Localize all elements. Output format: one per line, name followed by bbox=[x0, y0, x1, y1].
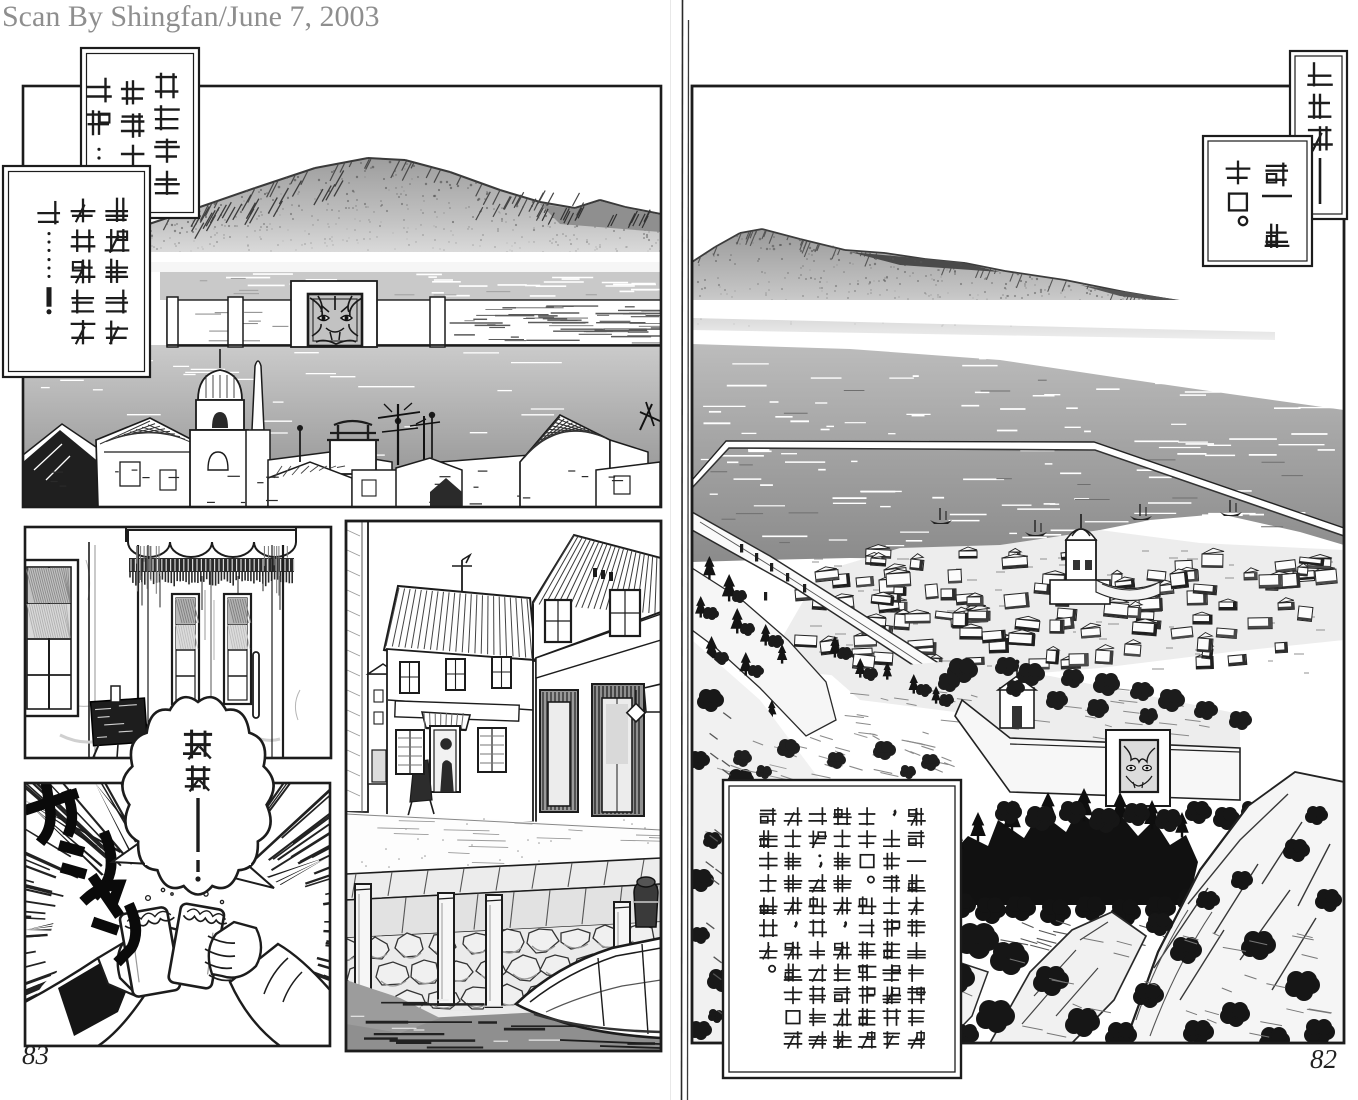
svg-text:82: 82 bbox=[1310, 1044, 1337, 1074]
svg-text:83: 83 bbox=[22, 1040, 49, 1070]
svg-text:Scan By Shingfan/June 7, 2003: Scan By Shingfan/June 7, 2003 bbox=[2, 0, 379, 33]
